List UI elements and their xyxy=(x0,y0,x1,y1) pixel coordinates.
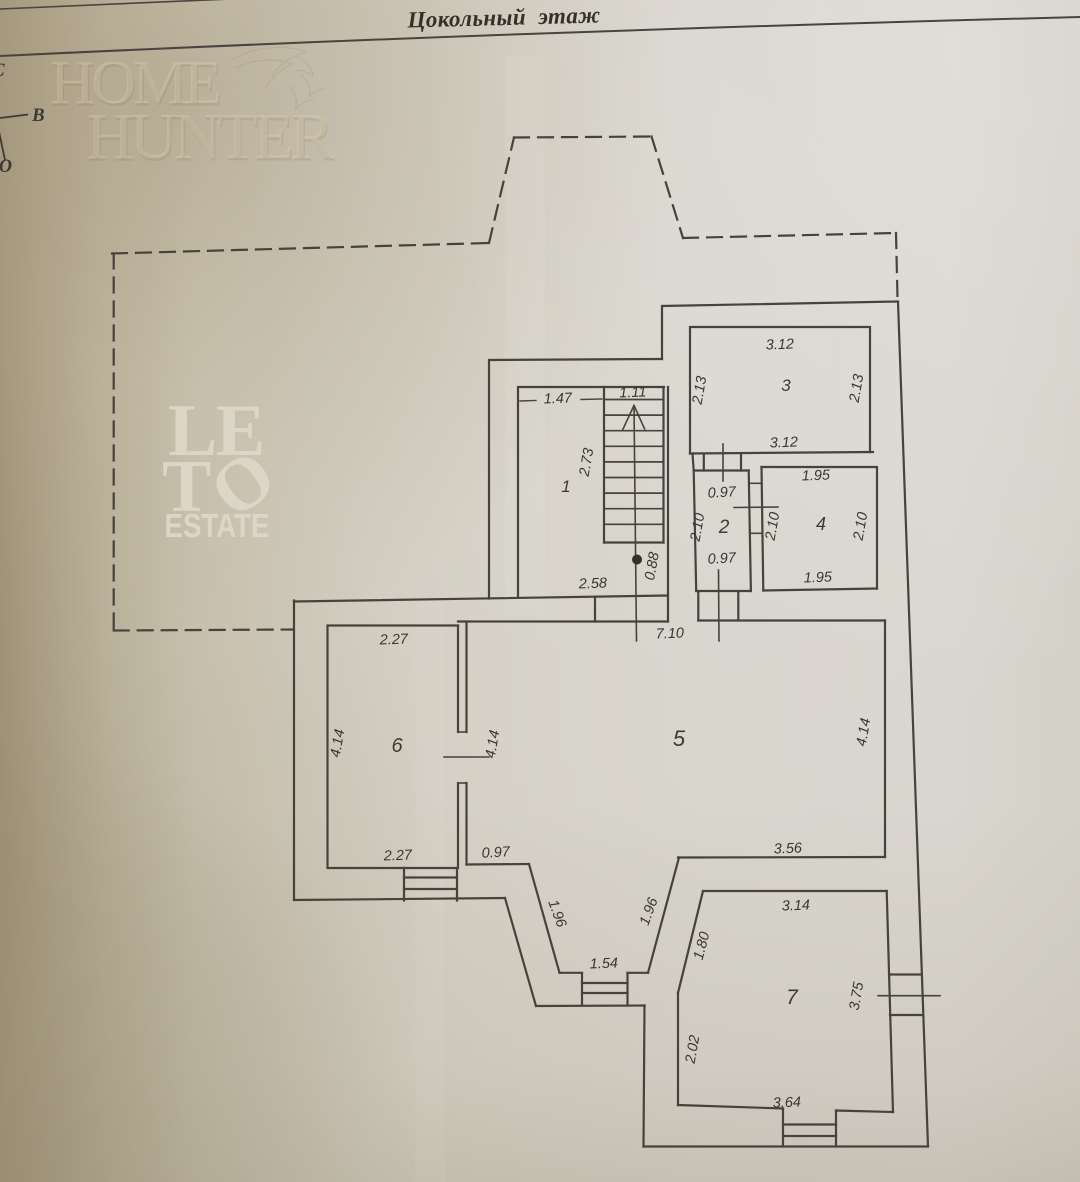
svg-text:7.10: 7.10 xyxy=(655,626,684,643)
svg-text:5: 5 xyxy=(673,726,686,751)
svg-text:Цокольный этаж: Цокольный этаж xyxy=(406,2,601,32)
svg-text:3.64: 3.64 xyxy=(772,1095,801,1112)
svg-text:2: 2 xyxy=(718,517,730,538)
svg-text:1: 1 xyxy=(561,477,570,496)
svg-text:В: В xyxy=(31,105,45,126)
svg-text:1.95: 1.95 xyxy=(801,467,831,484)
svg-text:0.97: 0.97 xyxy=(707,484,737,502)
svg-text:1.95: 1.95 xyxy=(803,569,833,586)
svg-text:3.12: 3.12 xyxy=(769,435,798,452)
svg-text:3.14: 3.14 xyxy=(781,898,810,915)
svg-text:0.97: 0.97 xyxy=(481,844,511,862)
svg-text:7: 7 xyxy=(786,986,799,1009)
svg-text:1.47: 1.47 xyxy=(543,390,573,407)
svg-text:2.27: 2.27 xyxy=(382,847,413,864)
svg-text:ESTATE: ESTATE xyxy=(165,507,270,544)
svg-text:6: 6 xyxy=(391,735,403,757)
svg-text:3.12: 3.12 xyxy=(765,337,794,354)
svg-text:0.97: 0.97 xyxy=(707,550,737,568)
svg-text:2.27: 2.27 xyxy=(378,631,409,648)
svg-text:4: 4 xyxy=(816,514,826,534)
svg-text:3: 3 xyxy=(781,376,791,395)
svg-text:3.56: 3.56 xyxy=(773,840,803,857)
svg-text:С: С xyxy=(0,60,5,81)
svg-text:HUNTER: HUNTER xyxy=(86,100,338,173)
svg-text:2.58: 2.58 xyxy=(577,576,607,593)
svg-text:Ю: Ю xyxy=(0,156,12,177)
svg-text:1.11: 1.11 xyxy=(619,385,647,402)
svg-text:1.54: 1.54 xyxy=(589,956,618,973)
